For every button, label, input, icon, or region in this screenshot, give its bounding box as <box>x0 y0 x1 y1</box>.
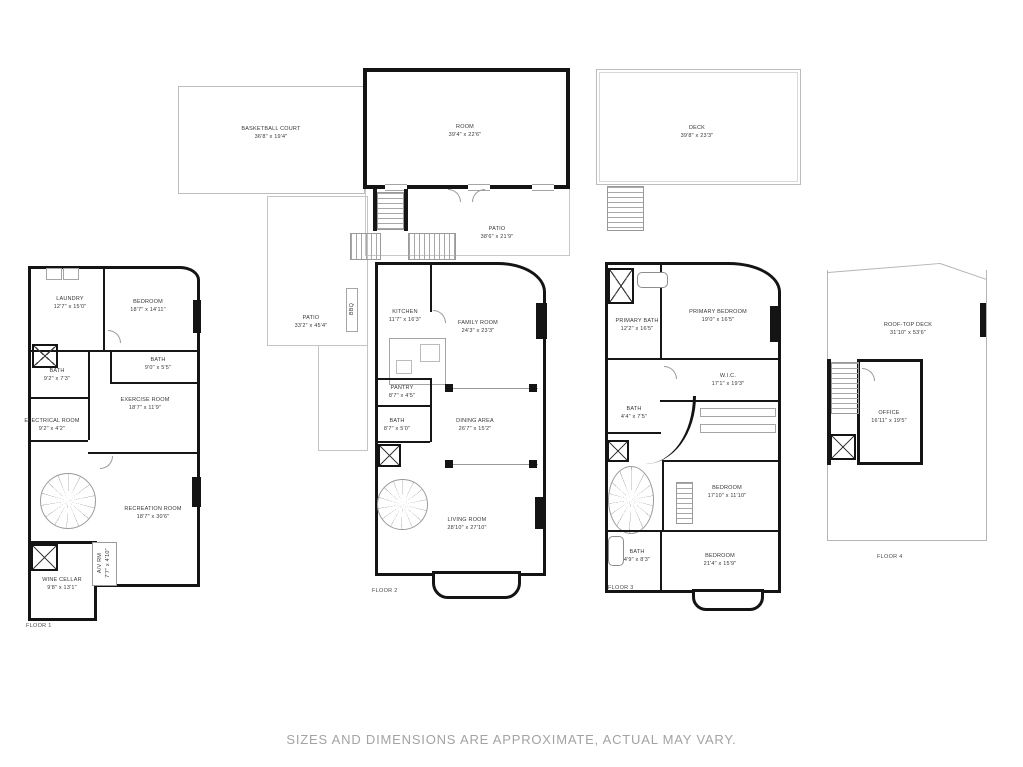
room-label-dining: DINING AREA 26'7" x 15'2" <box>456 417 494 434</box>
label-dims: 39'8" x 23'3" <box>681 132 714 140</box>
column <box>445 384 453 392</box>
label-dims: 4'4" x 7'5" <box>621 413 647 421</box>
room-label-exercise: EXERCISE ROOM 18'7" x 11'9" <box>120 396 169 413</box>
label-name: KITCHEN <box>389 308 421 316</box>
label-name: BATH <box>384 417 410 425</box>
label-name: BASKETBALL COURT <box>241 125 300 133</box>
column <box>445 460 453 468</box>
label-name: EXERCISE ROOM <box>120 396 169 404</box>
elevator-icon <box>378 444 401 467</box>
label-dims: 11'7" x 16'3" <box>389 316 421 324</box>
elevator-icon <box>830 434 856 460</box>
interior-wall <box>662 460 778 462</box>
interior-wall <box>31 440 88 442</box>
shower-icon <box>32 344 58 368</box>
kitchen-stove <box>396 360 412 374</box>
interior-wall <box>377 378 430 380</box>
interior-wall <box>430 378 432 442</box>
spiral-stair-icon <box>40 473 96 529</box>
room-label-deck: DECK 39'8" x 23'3" <box>681 124 714 141</box>
spiral-stair-icon <box>377 479 428 530</box>
label-dims: 18'7" x 14'11" <box>130 306 166 314</box>
room-label-bedroom-mid: BEDROOM 17'10" x 11'10" <box>708 484 747 501</box>
label-name: BATH <box>624 548 650 556</box>
interior-wall <box>607 530 779 532</box>
label-name: BEDROOM <box>704 552 737 560</box>
closet-rod <box>700 424 776 433</box>
room-label-patio-top: PATIO 38'6" x 21'9" <box>481 225 514 242</box>
label-dims: 17'1" x 19'3" <box>712 380 745 388</box>
room-label-patio-f2: PATIO 33'2" x 45'4" <box>295 314 328 331</box>
room-label-recreation: RECREATION ROOM 18'7" x 30'6" <box>124 505 181 522</box>
bathtub-icon <box>637 272 668 288</box>
patio-left-lower-outline <box>318 346 368 451</box>
interior-wall <box>103 268 105 352</box>
fireplace-block <box>536 303 547 339</box>
room-label-laundry: LAUNDRY 12'7" x 15'0" <box>54 295 87 312</box>
label-name: LIVING ROOM <box>447 516 486 524</box>
label-name: BATH <box>621 405 647 413</box>
interior-wall <box>377 441 430 443</box>
label-dims: 36'8" x 19'4" <box>241 133 300 141</box>
interior-wall <box>662 460 664 530</box>
label-name: PATIO <box>481 225 514 233</box>
stairs-icon <box>408 233 456 260</box>
label-name: BATH <box>44 367 70 375</box>
label-dims: 19'0" x 16'5" <box>689 316 747 324</box>
stair-wall <box>404 189 408 231</box>
label-name: OFFICE <box>871 409 907 417</box>
label-name: PRIMARY BATH <box>615 317 658 325</box>
room-label-room: ROOM 39'4" x 22'6" <box>449 123 482 140</box>
interior-wall <box>88 352 90 440</box>
bathtub-icon <box>608 536 624 566</box>
room-label-office: OFFICE 16'11" x 19'5" <box>871 409 907 426</box>
room-label-kitchen: KITCHEN 11'7" x 16'3" <box>389 308 421 325</box>
label-dims: 9'8" x 13'1" <box>42 584 82 592</box>
interior-wall <box>110 352 112 384</box>
label-dims: 16'11" x 19'5" <box>871 417 907 425</box>
room-label-av: A/V RM 7'7" x 4'10" <box>96 548 113 578</box>
room-label-basketball-court: BASKETBALL COURT 36'8" x 19'4" <box>241 125 300 142</box>
label-dims: 8'7" x 4'5" <box>389 392 415 400</box>
window-block <box>193 300 201 333</box>
label-name: FAMILY ROOM <box>458 319 498 327</box>
room-label-bedroom-lower: BEDROOM 21'4" x 15'9" <box>704 552 737 569</box>
interior-wall <box>110 382 197 384</box>
room-label-bbq: BBQ <box>348 303 356 315</box>
label-dims: 28'10" x 27'10" <box>447 524 486 532</box>
label-dims: 26'7" x 15'2" <box>456 425 494 433</box>
label-dims: 12'2" x 16'5" <box>615 325 658 333</box>
label-dims: 9'2" x 7'3" <box>44 375 70 383</box>
elevator-icon <box>607 440 629 462</box>
room-label-bath-upper-f3: BATH 4'4" x 7'5" <box>621 405 647 422</box>
window <box>532 184 554 191</box>
interior-wall <box>377 405 430 407</box>
label-dims: 8'7" x 5'0" <box>384 425 410 433</box>
label-name: BEDROOM <box>708 484 747 492</box>
elevator-icon <box>31 544 58 571</box>
fireplace-block <box>770 306 781 342</box>
label-dims: 21'4" x 15'9" <box>704 560 737 568</box>
label-dims: 9'0" x 5'5" <box>145 364 171 372</box>
beam-line <box>448 464 538 465</box>
label-name: WINE CELLAR <box>42 576 82 584</box>
label-name: W.I.C. <box>712 372 745 380</box>
label-name: DECK <box>681 124 714 132</box>
label-dims: 18'7" x 11'9" <box>120 404 169 412</box>
deck-stairs-icon <box>607 186 644 231</box>
stairs-icon <box>831 362 859 414</box>
room-label-pantry: PANTRY 8'7" x 4'5" <box>389 384 415 401</box>
kitchen-counter <box>420 344 440 362</box>
floor1-tag: FLOOR 1 <box>26 624 52 630</box>
interior-wall <box>607 358 779 360</box>
label-dims: 7'7" x 4'10" <box>104 548 112 578</box>
interior-wall <box>31 397 88 399</box>
label-name: PANTRY <box>389 384 415 392</box>
washer-icon <box>46 268 62 280</box>
floor3-tag: FLOOR 3 <box>608 586 634 592</box>
fireplace-block <box>192 477 201 507</box>
label-name: BBQ <box>348 303 356 315</box>
label-dims: 9'2" x 4'2" <box>24 425 79 433</box>
room-label-bath-f2: BATH 8'7" x 5'0" <box>384 417 410 434</box>
label-name: ROOM <box>449 123 482 131</box>
label-name: BATH <box>145 356 171 364</box>
spiral-stair-icon <box>608 466 654 534</box>
beam-line <box>448 388 538 389</box>
label-dims: 4'9" x 8'3" <box>624 556 650 564</box>
interior-wall <box>88 452 197 454</box>
floor3-bay-window <box>692 589 764 611</box>
room-label-wic: W.I.C. 17'1" x 19'3" <box>712 372 745 389</box>
room-label-living: LIVING ROOM 28'10" x 27'10" <box>447 516 486 533</box>
label-dims: 18'7" x 30'6" <box>124 513 181 521</box>
label-name: LAUNDRY <box>54 295 87 303</box>
floor-plan-canvas: BASKETBALL COURT 36'8" x 19'4" ROOM 39'4… <box>0 0 1023 767</box>
label-dims: 33'2" x 45'4" <box>295 322 328 330</box>
label-dims: 38'6" x 21'9" <box>481 233 514 241</box>
label-name: RECREATION ROOM <box>124 505 181 513</box>
floor2-bay-window <box>432 571 521 599</box>
label-dims: 24'3" x 23'3" <box>458 327 498 335</box>
label-name: BEDROOM <box>130 298 166 306</box>
interior-wall <box>430 264 432 312</box>
column <box>529 384 537 392</box>
dryer-icon <box>63 268 79 280</box>
room-label-bath-hall-f1: BATH 9'0" x 5'5" <box>145 356 171 373</box>
window-block <box>535 497 545 529</box>
room-label-bath-lower-f3: BATH 4'9" x 8'3" <box>624 548 650 565</box>
shower-icon <box>608 268 634 304</box>
column <box>529 460 537 468</box>
room-label-family-room: FAMILY ROOM 24'3" x 23'3" <box>458 319 498 336</box>
interior-wall <box>660 530 662 593</box>
disclaimer-text: SIZES AND DIMENSIONS ARE APPROXIMATE, AC… <box>286 732 736 747</box>
label-name: PATIO <box>295 314 328 322</box>
label-dims: 31'10" x 53'6" <box>884 329 932 337</box>
label-name: PRIMARY BEDROOM <box>689 308 747 316</box>
room-label-rooftop-deck: ROOF-TOP DECK 31'10" x 53'6" <box>884 321 932 338</box>
label-dims: 39'4" x 22'6" <box>449 131 482 139</box>
label-name: ROOF-TOP DECK <box>884 321 932 329</box>
closet-rod <box>700 408 776 417</box>
stairs-icon <box>377 192 404 230</box>
room-label-electrical: ELECTRICAL ROOM 9'2" x 4'2" <box>24 417 79 434</box>
label-dims: 12'7" x 15'0" <box>54 303 87 311</box>
room-label-bedroom-f1: BEDROOM 18'7" x 14'11" <box>130 298 166 315</box>
floor2-tag: FLOOR 2 <box>372 589 398 595</box>
room-label-wine-cellar: WINE CELLAR 9'8" x 13'1" <box>42 576 82 593</box>
label-name: A/V RM <box>96 548 104 578</box>
room-label-bath-f1: BATH 9'2" x 7'3" <box>44 367 70 384</box>
closet-icon <box>676 482 693 524</box>
floor4-tag: FLOOR 4 <box>877 555 903 561</box>
label-dims: 17'10" x 11'10" <box>708 492 747 500</box>
wall-segment <box>980 303 986 337</box>
room-label-primary-bedroom: PRIMARY BEDROOM 19'0" x 16'5" <box>689 308 747 325</box>
room-label-primary-bath: PRIMARY BATH 12'2" x 16'5" <box>615 317 658 334</box>
label-name: DINING AREA <box>456 417 494 425</box>
stairs-icon <box>350 233 381 260</box>
label-name: ELECTRICAL ROOM <box>24 417 79 425</box>
